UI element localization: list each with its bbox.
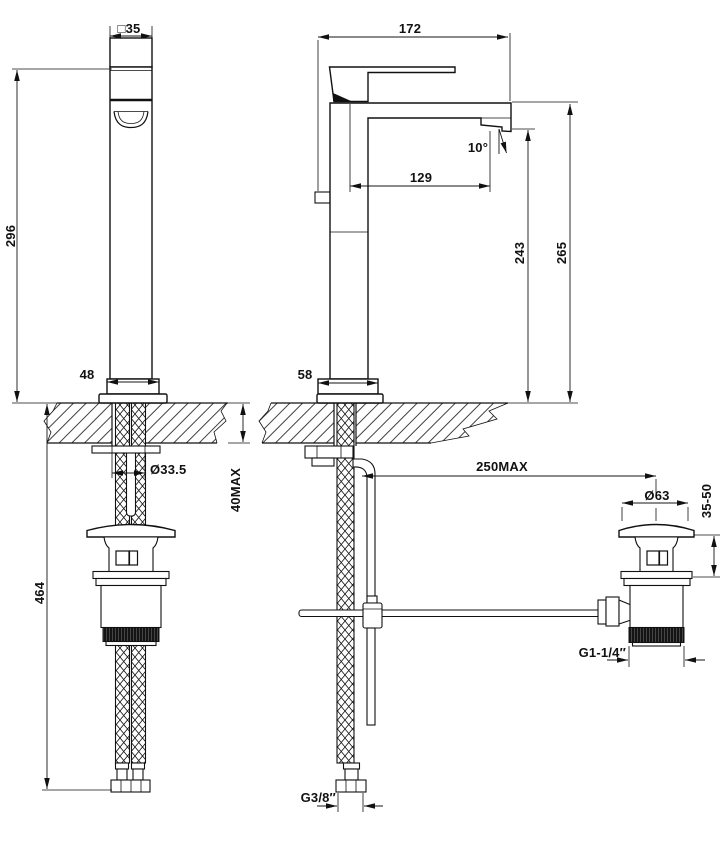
faucet-body: [110, 67, 152, 379]
dim-counter-max: 40MAX: [228, 468, 243, 512]
waste-thread: [629, 628, 684, 643]
base-plate: [317, 394, 383, 403]
faucet-handle: [110, 38, 152, 67]
dim-handle-square: □35: [118, 21, 141, 36]
technical-drawing-page: □35 296 48 Ø33.5 40MAX 464 172 129 10° 2…: [0, 0, 728, 842]
faucet-base: [107, 379, 159, 394]
dim-base-58: 58: [298, 367, 313, 382]
mounting-nut: [305, 446, 353, 458]
counter-hatch: [145, 403, 227, 443]
popup-horizontal-rod: [299, 610, 602, 617]
dim-depth-172: 172: [399, 21, 421, 36]
popup-waste-side: [598, 525, 694, 647]
dim-thread-g38: G3/8″: [301, 790, 336, 805]
faucet-front: [99, 38, 167, 403]
hose-fittings: [111, 763, 150, 792]
dim-hose-464: 464: [32, 581, 47, 604]
popup-waste-front: [87, 525, 175, 646]
dim-hole-diameter: Ø33.5: [150, 462, 186, 477]
faucet-base: [318, 379, 378, 394]
base-plate: [99, 394, 167, 403]
faucet-dimension-drawing: □35 296 48 Ø33.5 40MAX 464 172 129 10° 2…: [0, 0, 728, 842]
dim-height-243: 243: [512, 242, 527, 264]
mounting-washer: [92, 446, 160, 453]
dim-height-265: 265: [554, 242, 569, 264]
hose-fitting: [336, 763, 366, 792]
dim-angle-10: 10°: [468, 140, 488, 155]
dim-base-48: 48: [80, 367, 95, 382]
mounting-stud: [127, 450, 136, 516]
counter-hatch: [356, 403, 508, 443]
side-view: [259, 67, 694, 792]
popup-rod-knob: [315, 192, 330, 203]
counter-hatch: [259, 403, 334, 443]
faucet-side: [315, 67, 511, 403]
dim-range-35-50: 35-50: [699, 484, 714, 518]
dim-reach-129: 129: [410, 170, 432, 185]
popup-rod-lower: [367, 628, 375, 725]
front-view: [44, 38, 228, 792]
rod-clamp: [363, 603, 382, 628]
waste-thread: [103, 628, 159, 642]
dim-thread-g114: G1-1/4″: [579, 645, 626, 660]
dim-rod-250max: 250MAX: [476, 459, 528, 474]
popup-rod-elbow: [353, 459, 375, 603]
faucet-lever: [330, 67, 456, 102]
dim-height-296: 296: [3, 225, 18, 247]
rod-clamp-screw: [367, 596, 377, 603]
dim-cap-63: Ø63: [644, 488, 669, 503]
